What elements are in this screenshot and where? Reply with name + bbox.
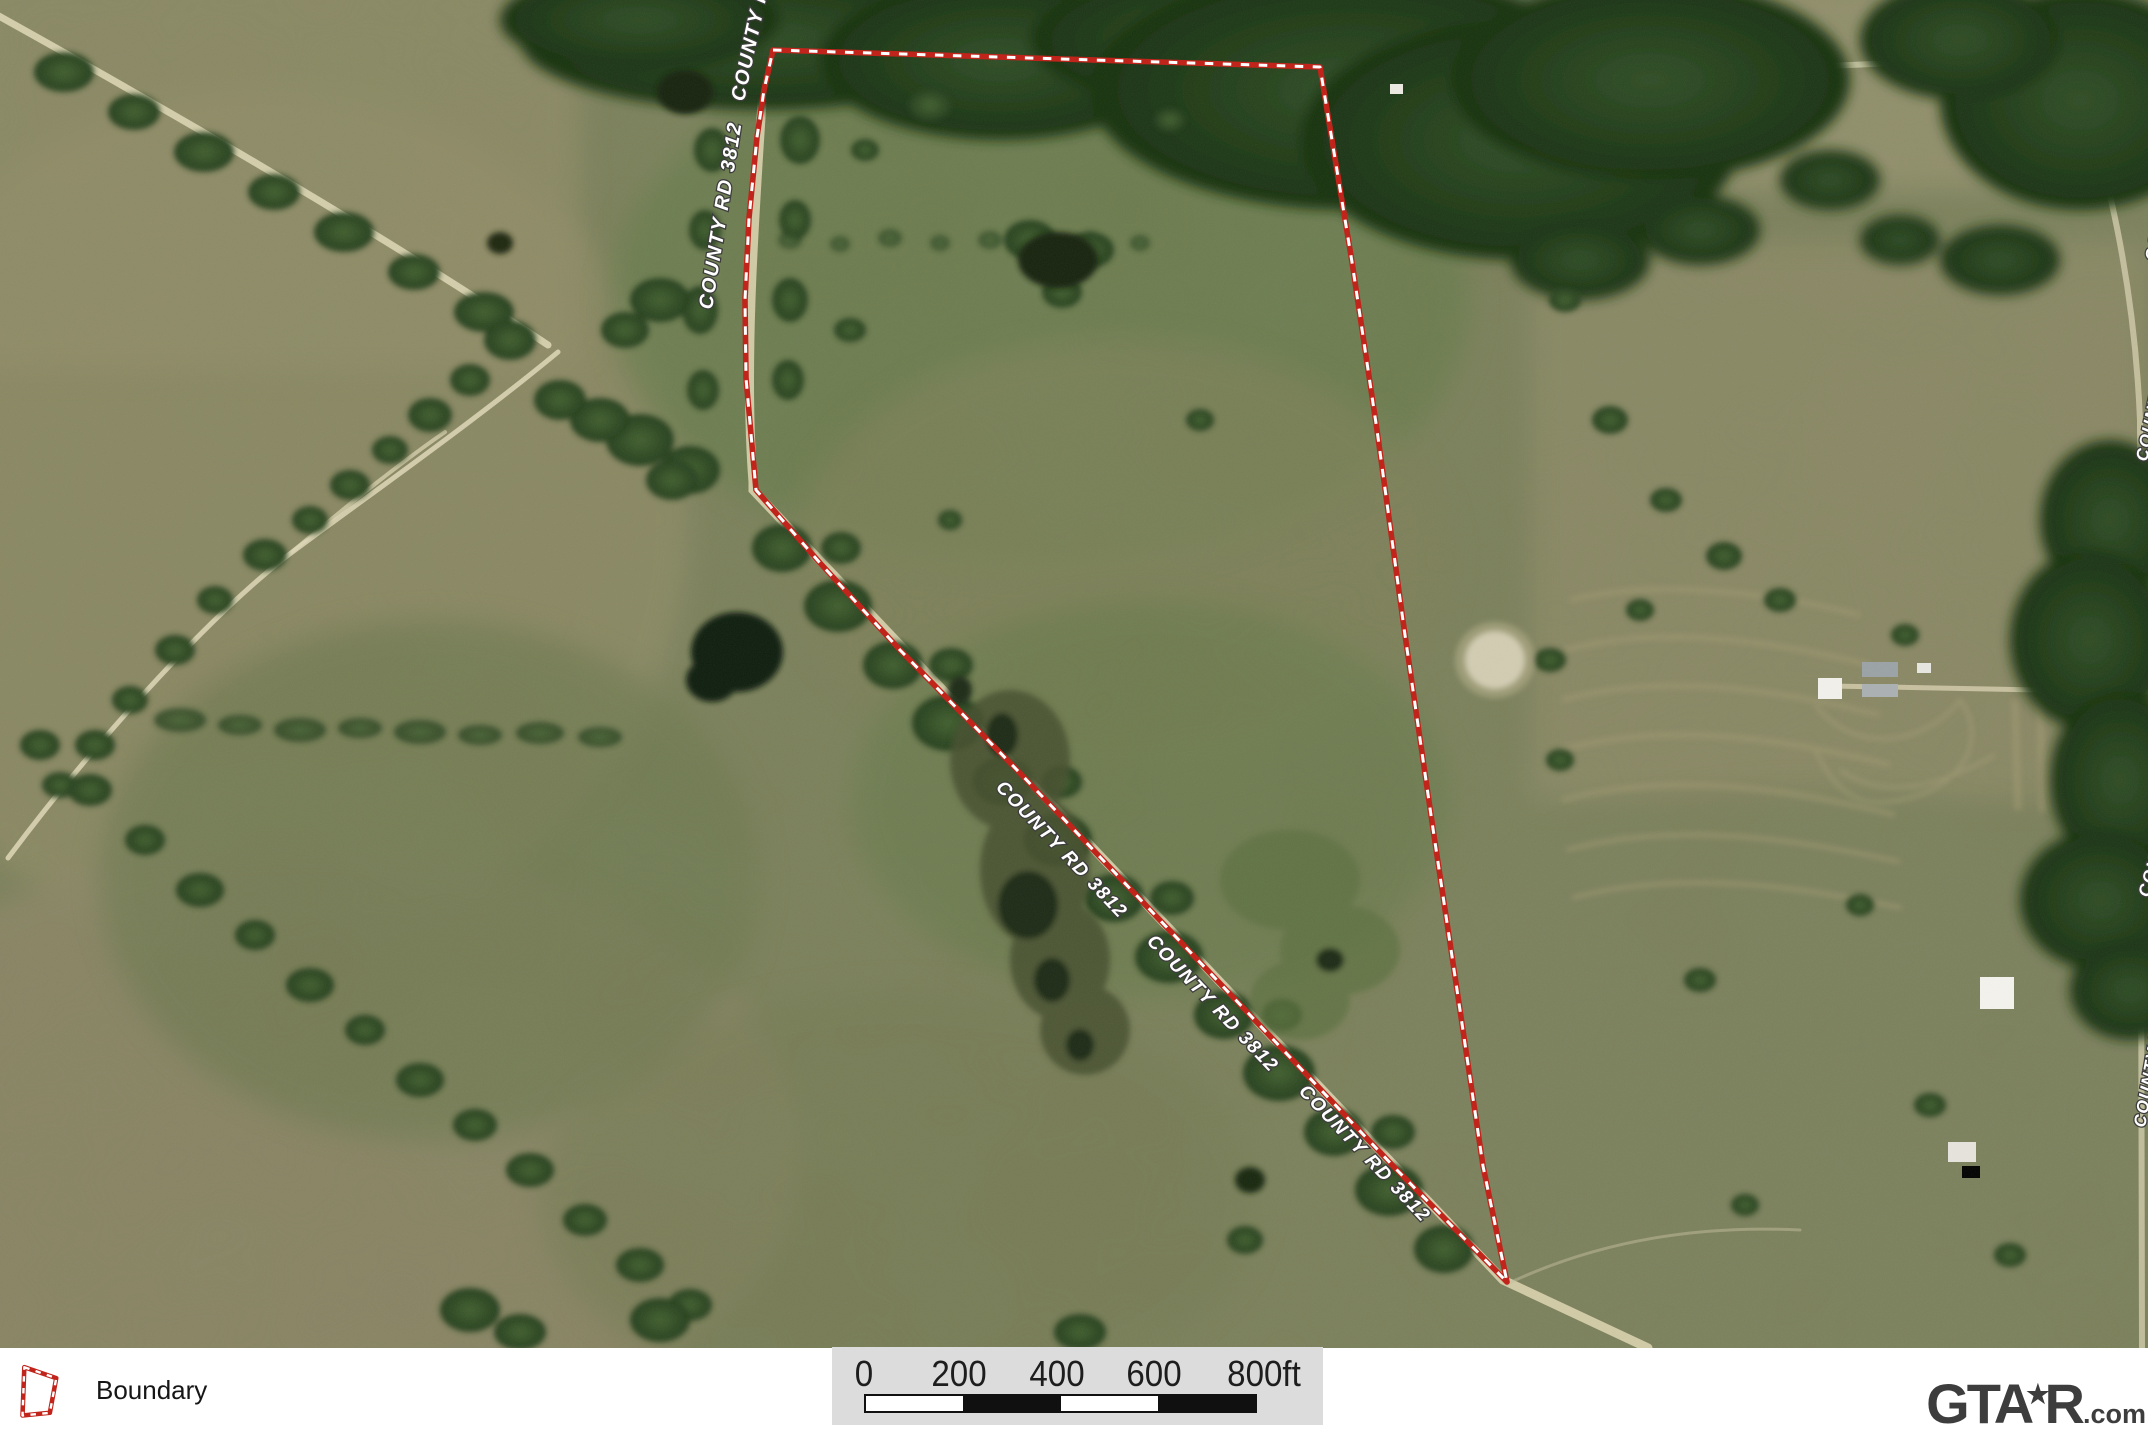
legend-label: Boundary bbox=[96, 1375, 207, 1406]
image-grain bbox=[0, 0, 2148, 1348]
star-icon: ★ bbox=[2026, 1379, 2049, 1410]
gtar-watermark-suffix: .com bbox=[2083, 1399, 2146, 1430]
gtar-watermark-main: GTA bbox=[1926, 1371, 2031, 1432]
scale-bar: 0 200 400 600 800ft bbox=[832, 1347, 1323, 1425]
legend-boundary: Boundary bbox=[10, 1358, 207, 1422]
satellite-map[interactable]: COUNTY R COUNTY RD 3812 COUNTY RD 3812 C… bbox=[0, 0, 2148, 1348]
scale-tick: 0 bbox=[855, 1353, 873, 1395]
scale-tick: 400 bbox=[1029, 1353, 1084, 1395]
scale-tick: 800ft bbox=[1227, 1353, 1301, 1395]
gtar-watermark-r: R bbox=[2045, 1371, 2082, 1432]
map-footer: Boundary 0 200 400 600 800ft id. The inf… bbox=[0, 1348, 2148, 1432]
scale-tick: 600 bbox=[1126, 1353, 1181, 1395]
boundary-legend-icon bbox=[10, 1359, 66, 1421]
scale-bar-segments bbox=[864, 1394, 1257, 1413]
land-id-map-screenshot: COUNTY R COUNTY RD 3812 COUNTY RD 3812 C… bbox=[0, 0, 2148, 1432]
gtar-watermark: GTA★R.com bbox=[1926, 1371, 2146, 1432]
scale-tick: 200 bbox=[931, 1353, 986, 1395]
